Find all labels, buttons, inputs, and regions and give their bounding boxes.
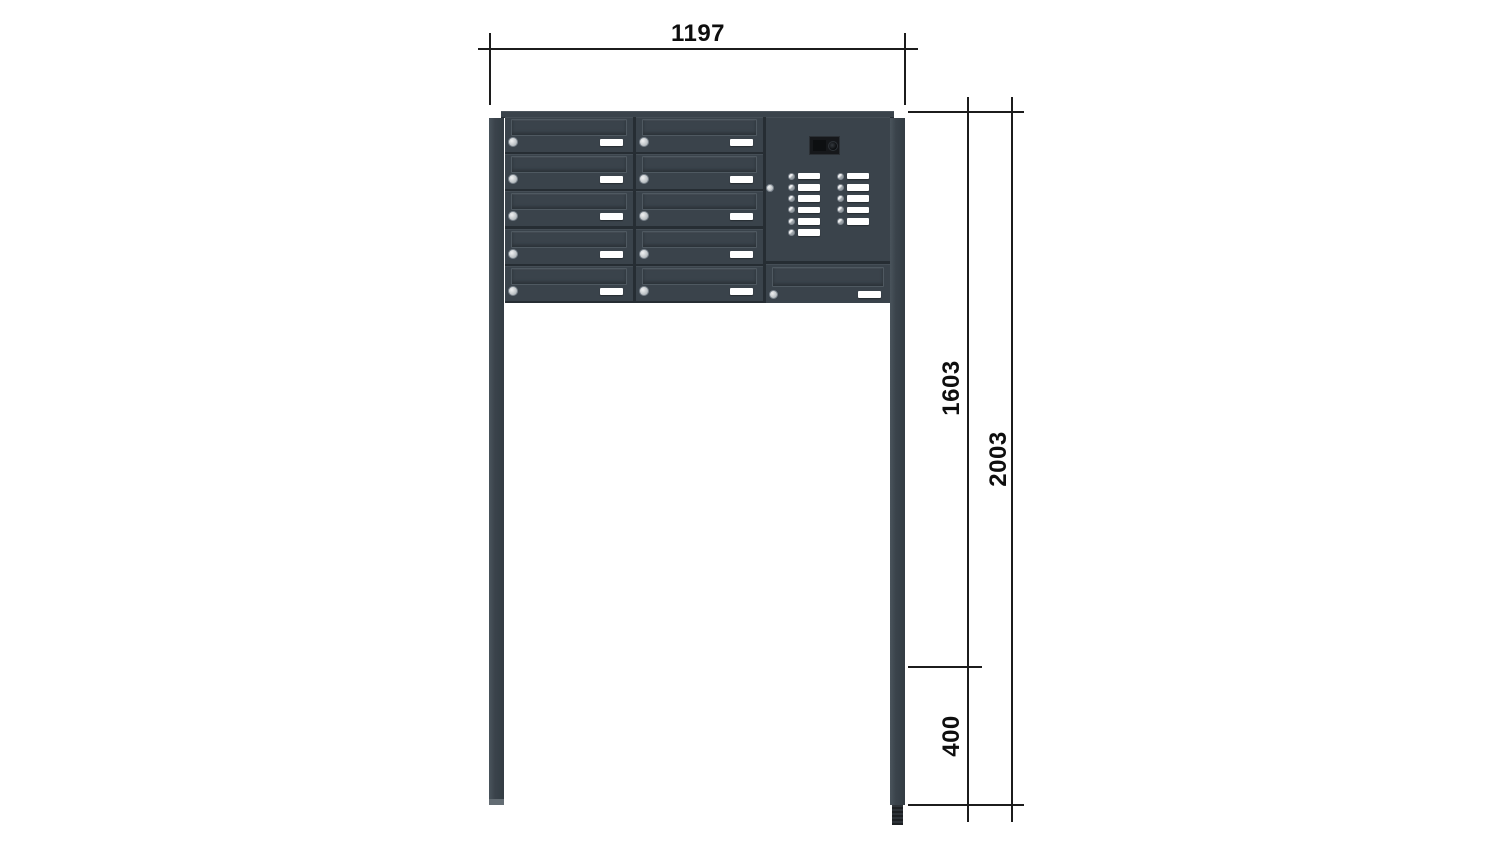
intercom-panel [766,117,890,261]
lock-icon [639,174,649,184]
lock-icon [508,174,518,184]
lock-icon [508,137,518,147]
mailbox-door [636,117,763,152]
name-plate [600,176,623,183]
extension-line-ground [908,666,982,668]
mailbox-flap [642,156,757,173]
dimension-line-1603 [967,97,969,822]
unit-body [505,117,890,303]
lock-icon [639,137,649,147]
lock-icon [639,249,649,259]
bell-name-plate [847,195,869,202]
bell-button [837,195,844,202]
bell-name-plate [847,184,869,191]
bell-button [788,229,795,236]
mailbox-flap [642,193,757,210]
bell-button [837,206,844,213]
mailbox-flap [511,193,627,210]
mailbox-flap [642,119,757,136]
bell-button [837,184,844,191]
witness-line-right [904,33,906,105]
bell-button [788,173,795,180]
mailbox-door [505,117,633,152]
dimension-width-label: 1197 [598,20,798,48]
bell-name-plate [798,173,820,180]
lock-icon [766,184,774,192]
mailbox-door [636,191,763,226]
post-left [489,118,504,805]
mailbox-door [505,229,633,264]
camera-screen [813,140,826,151]
bell-button [837,218,844,225]
extension-line-top [908,111,1024,113]
bell-button [788,206,795,213]
mailbox-door [505,191,633,226]
name-plate [600,251,623,258]
dimension-2003-label: 2003 [985,431,1013,486]
name-plate [730,251,753,258]
dimension-1603-label: 1603 [938,360,966,415]
mailbox-flap [511,156,627,173]
bell-name-plate [847,218,869,225]
mailbox-column-2 [636,117,763,303]
name-plate [730,213,753,220]
ground-anchor [892,805,903,825]
post-right [890,118,905,805]
camera-module [809,136,840,155]
mailbox-door [766,264,890,303]
name-plate [600,213,623,220]
bell-button [788,195,795,202]
bell-name-plate [798,184,820,191]
bell-button [788,184,795,191]
lock-icon [508,249,518,259]
mailbox-door [505,266,633,301]
lock-icon [639,286,649,296]
lock-icon [508,211,518,221]
post-left-endcap [489,799,504,805]
name-plate [600,139,623,146]
extension-line-bottom [908,804,1024,806]
camera-lens-icon [828,141,838,151]
dimension-400-label: 400 [938,715,966,757]
mailbox-flap [642,268,757,285]
bell-name-plate [847,207,869,214]
bell-name-plate [798,218,820,225]
lock-icon [508,286,518,296]
mailbox-flap [511,268,627,285]
lock-icon [639,211,649,221]
name-plate [730,139,753,146]
mailbox-flap [511,119,627,136]
witness-line-left [489,33,491,105]
bell-button [788,218,795,225]
mailbox-flap [772,267,884,287]
technical-drawing-canvas: 1197 1603 2003 400 [0,0,1500,856]
lock-icon [769,290,778,299]
intercom-column [766,117,890,303]
bell-button [837,173,844,180]
bell-name-plate [847,173,869,180]
name-plate [730,176,753,183]
mailbox-door [636,266,763,301]
mailbox-flap [642,231,757,248]
mailbox-door [636,154,763,189]
name-plate [730,288,753,295]
dimension-line-width [478,48,918,50]
mailbox-column-1 [505,117,633,303]
mailbox-door [505,154,633,189]
bell-name-plate [798,229,820,236]
bell-name-plate [798,195,820,202]
name-plate [858,291,881,298]
mailbox-door [636,229,763,264]
bell-name-plate [798,207,820,214]
mailbox-flap [511,231,627,248]
name-plate [600,288,623,295]
